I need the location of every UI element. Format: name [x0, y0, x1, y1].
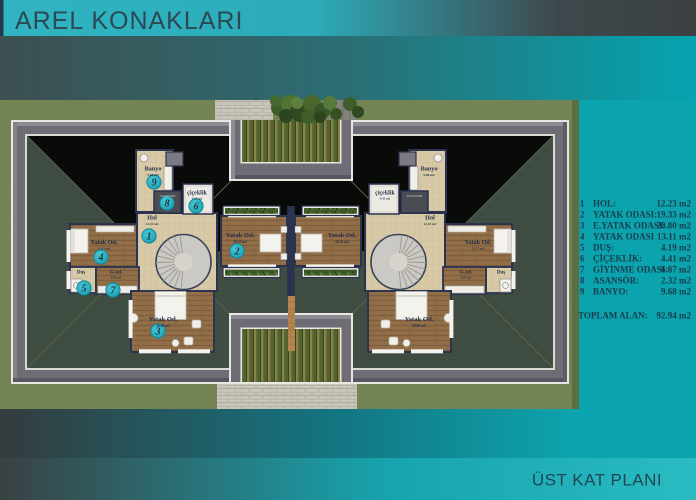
- svg-text:ÜST KAT PLANI: ÜST KAT PLANI: [532, 471, 662, 490]
- svg-text:9.68 m2: 9.68 m2: [423, 173, 435, 177]
- svg-text:Yatak Od.: Yatak Od.: [405, 316, 434, 323]
- svg-text:ASANSÖR: ASANSÖR: [159, 193, 176, 198]
- svg-text:9: 9: [152, 177, 157, 188]
- svg-text:BANYO:: BANYO:: [593, 287, 629, 297]
- svg-text:2: 2: [580, 210, 585, 220]
- svg-text:Banyo: Banyo: [145, 166, 162, 173]
- svg-text:7: 7: [580, 265, 585, 275]
- svg-text:4.41 m2: 4.41 m2: [380, 197, 391, 201]
- svg-text:3: 3: [155, 326, 161, 337]
- svg-text:YATAK ODASI:: YATAK ODASI:: [593, 210, 657, 220]
- svg-text:GİYİNME ODASI:: GİYİNME ODASI:: [593, 265, 668, 275]
- svg-text:20.80 m2: 20.80 m2: [657, 221, 692, 231]
- svg-text:Yatak Od.: Yatak Od.: [91, 239, 118, 246]
- svg-text:9.68 m2: 9.68 m2: [661, 287, 691, 297]
- svg-text:6.87 m2: 6.87 m2: [111, 276, 122, 280]
- svg-text:ASANSÖR:: ASANSÖR:: [593, 276, 639, 286]
- svg-text:5: 5: [580, 243, 585, 253]
- svg-text:12.23 m2: 12.23 m2: [424, 222, 437, 226]
- svg-text:4: 4: [98, 252, 104, 263]
- svg-text:Duş: Duş: [497, 271, 505, 276]
- svg-text:12.23 m2: 12.23 m2: [657, 199, 692, 209]
- svg-text:6.87 m2: 6.87 m2: [461, 276, 472, 280]
- svg-text:2.32 m2: 2.32 m2: [661, 276, 691, 286]
- svg-text:Banyo: Banyo: [421, 166, 438, 173]
- svg-text:TOPLAM ALAN:: TOPLAM ALAN:: [578, 311, 648, 321]
- svg-text:19.33 m2: 19.33 m2: [335, 240, 349, 244]
- svg-text:AREL KONAKLARI: AREL KONAKLARI: [15, 7, 243, 35]
- svg-text:DUŞ:: DUŞ:: [593, 243, 614, 253]
- svg-text:9: 9: [580, 287, 585, 297]
- svg-text:5: 5: [82, 283, 87, 294]
- svg-text:2: 2: [234, 246, 240, 257]
- svg-text:9.68 m2: 9.68 m2: [147, 173, 159, 177]
- svg-text:8: 8: [165, 198, 170, 209]
- svg-text:ÇİÇEKLİK:: ÇİÇEKLİK:: [593, 254, 642, 264]
- svg-text:Yatak Od.: Yatak Od.: [149, 316, 178, 323]
- svg-text:92.94 m2: 92.94 m2: [657, 311, 692, 321]
- svg-text:4.41 m2: 4.41 m2: [192, 197, 203, 201]
- svg-text:6.87 m2: 6.87 m2: [661, 265, 691, 275]
- svg-text:YATAK ODASI: YATAK ODASI: [593, 232, 655, 242]
- svg-text:1: 1: [147, 231, 152, 242]
- svg-text:E.YATAK ODASI:: E.YATAK ODASI:: [593, 221, 665, 231]
- svg-text:13.11 m2: 13.11 m2: [657, 232, 692, 242]
- svg-text:Yatak Od.: Yatak Od.: [328, 232, 357, 239]
- svg-text:13.11 m2: 13.11 m2: [472, 247, 485, 251]
- svg-text:12.23 m2: 12.23 m2: [146, 222, 159, 226]
- svg-text:4.19 m2: 4.19 m2: [661, 243, 691, 253]
- svg-text:1: 1: [580, 199, 585, 209]
- svg-text:20.80 m2: 20.80 m2: [412, 324, 426, 328]
- svg-text:6: 6: [194, 201, 199, 212]
- svg-text:4: 4: [580, 232, 585, 242]
- svg-text:13.11 m2: 13.11 m2: [98, 247, 111, 251]
- svg-text:8: 8: [580, 276, 585, 286]
- svg-text:Hol: Hol: [425, 215, 435, 222]
- svg-text:3: 3: [580, 221, 585, 231]
- svg-text:4.41 m2: 4.41 m2: [661, 254, 691, 264]
- svg-text:Yatak Od.: Yatak Od.: [465, 239, 492, 246]
- svg-text:19.33 m2: 19.33 m2: [233, 240, 247, 244]
- svg-text:HOL:: HOL:: [593, 199, 616, 209]
- svg-text:20.80 m2: 20.80 m2: [156, 324, 170, 328]
- svg-text:6: 6: [580, 254, 585, 264]
- svg-text:Duş: Duş: [77, 271, 85, 276]
- svg-text:19.33 m2: 19.33 m2: [657, 210, 692, 220]
- svg-text:Yatak Od.: Yatak Od.: [226, 232, 255, 239]
- svg-text:ASANSÖR: ASANSÖR: [406, 193, 423, 198]
- svg-text:Hol: Hol: [147, 215, 157, 222]
